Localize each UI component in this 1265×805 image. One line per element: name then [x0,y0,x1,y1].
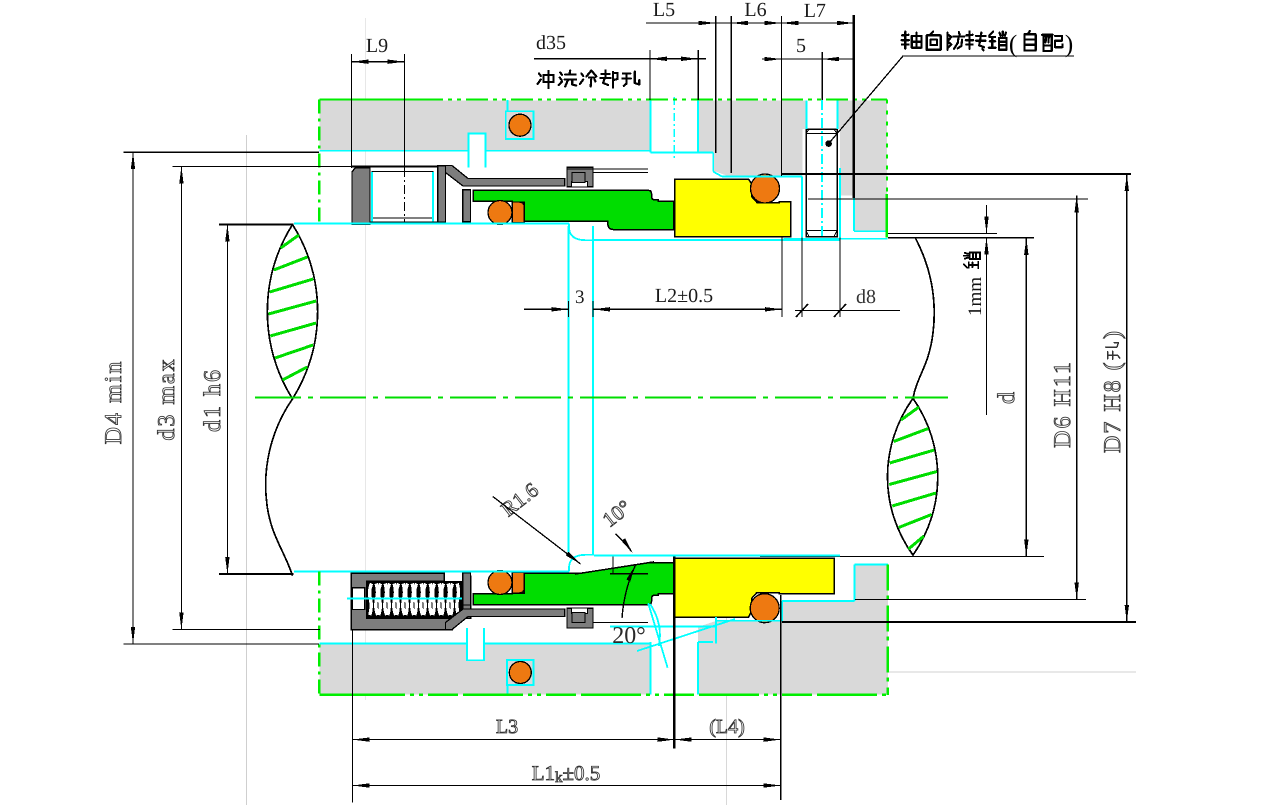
svg-text:D4 min: D4 min [101,360,127,445]
svg-text:D7 H8 (: D7 H8 ( [1100,360,1126,453]
svg-text:(L4): (L4) [709,716,745,738]
svg-text:L2±0.5: L2±0.5 [655,285,713,307]
svg-text:L6: L6 [744,0,766,21]
svg-text:20°: 20° [612,623,646,649]
svg-text:): ) [1100,331,1126,339]
svg-text:(: ( [1009,31,1017,58]
svg-text:L5: L5 [653,0,675,21]
svg-text:L3: L3 [496,716,518,738]
svg-text:d1 h6: d1 h6 [200,368,226,432]
svg-text:L7: L7 [804,0,826,22]
svg-text:d3 max: d3 max [154,357,180,440]
svg-text:): ) [1065,31,1073,58]
svg-text:L1k±0.5: L1k±0.5 [532,761,601,786]
svg-text:1mm: 1mm [965,277,986,316]
svg-text:d35: d35 [536,32,566,54]
svg-text:D6 H11: D6 H11 [1050,360,1076,448]
svg-text:d: d [994,392,1020,404]
svg-text:5: 5 [796,35,806,57]
svg-text:d8: d8 [856,286,876,308]
svg-text:L9: L9 [366,35,388,57]
svg-text:3: 3 [575,287,585,308]
